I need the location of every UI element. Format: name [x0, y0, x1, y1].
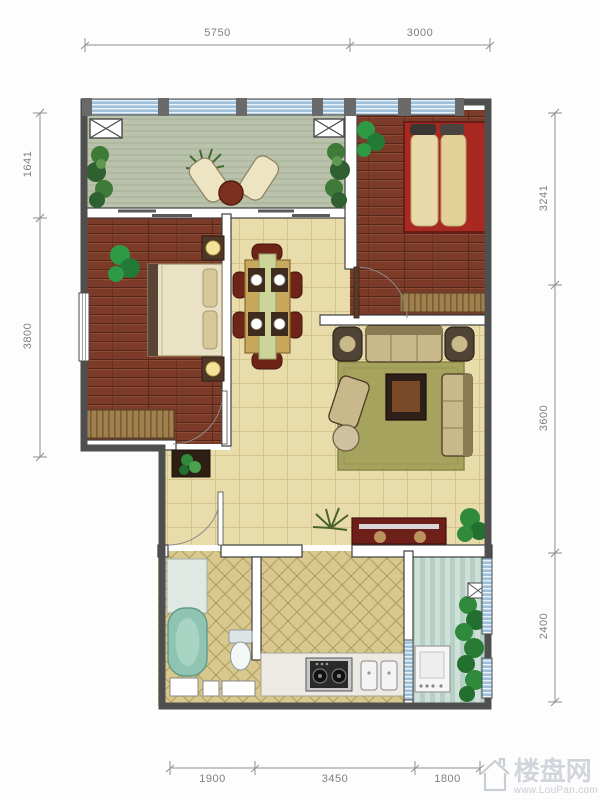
vanity-icon: [203, 681, 219, 696]
shower-icon: [167, 559, 207, 613]
wardrobe-icon: [86, 410, 174, 438]
kitchen-balcony-glass-door: [404, 640, 413, 700]
utility-side-window: [482, 658, 492, 698]
nightstand-icon: [202, 357, 224, 381]
bedroom2-left-wall: [345, 102, 357, 269]
floor-plan-drawing: [0, 0, 600, 800]
armchair-icon: [333, 327, 362, 361]
tv-console-icon: [352, 518, 446, 544]
dim-label-bottom-2: 3450: [255, 773, 415, 785]
coffee-table-icon: [386, 374, 426, 420]
dim-label-bottom-1: 1900: [170, 773, 255, 785]
cooktop-icon: [306, 658, 352, 691]
hall-bottom-wall-b: [221, 545, 302, 557]
master-window: [79, 293, 89, 361]
armchair-icon: [445, 327, 474, 361]
sliding-door-leaf: [118, 210, 156, 213]
dim-label-top-1: 5750: [85, 27, 350, 39]
bath-kitchen-wall: [252, 557, 261, 660]
washing-machine-icon: [415, 646, 450, 692]
kitchen: [261, 653, 406, 696]
door-leaf: [354, 267, 359, 318]
sofa-icon: [366, 326, 442, 362]
bedroom2-bottom-wall: [320, 315, 488, 325]
watermark-site-name: 楼盘网: [514, 758, 592, 784]
bed-icon: [404, 122, 488, 232]
living-bottom-wall: [352, 545, 492, 557]
round-table-icon: [219, 181, 243, 205]
bathtub-basin: [176, 618, 200, 666]
vanity-icon: [170, 678, 198, 696]
floor-plan-page: 5750 3000 1641 3800 3241 3600 2400 1900 …: [0, 0, 600, 800]
dim-label-top-2: 3000: [350, 27, 490, 39]
dim-label-left-2: 3800: [22, 306, 34, 366]
door-leaf: [218, 492, 223, 545]
dining-table-icon: [245, 254, 290, 359]
dim-label-right-2: 3600: [538, 388, 550, 448]
vanity-icon: [222, 681, 255, 696]
watermark-site-url: www.LouPan.com: [514, 786, 598, 796]
ottoman-icon: [333, 425, 359, 451]
utility-side-window: [482, 558, 492, 634]
sliding-door-leaf: [152, 214, 192, 217]
dim-label-right-1: 3241: [538, 168, 550, 228]
toilet-icon: [229, 630, 252, 670]
dim-label-left-1: 1641: [22, 134, 34, 194]
sliding-door-leaf: [292, 214, 330, 217]
nightstand-icon: [202, 236, 224, 260]
balcony-railing-window: [82, 99, 350, 115]
dim-label-right-3: 2400: [538, 596, 550, 656]
house-logo-icon: [478, 754, 512, 796]
sofa-icon: [442, 374, 472, 456]
dresser-icon: [400, 293, 486, 312]
sliding-door-leaf: [258, 210, 294, 213]
door-leaf: [222, 391, 227, 444]
dim-label-bottom-3: 1800: [415, 773, 480, 785]
watermark-text: 楼盘网 www.LouPan.com: [514, 758, 598, 796]
watermark: 楼盘网 www.LouPan.com: [478, 754, 598, 796]
bed-icon: [148, 264, 222, 356]
